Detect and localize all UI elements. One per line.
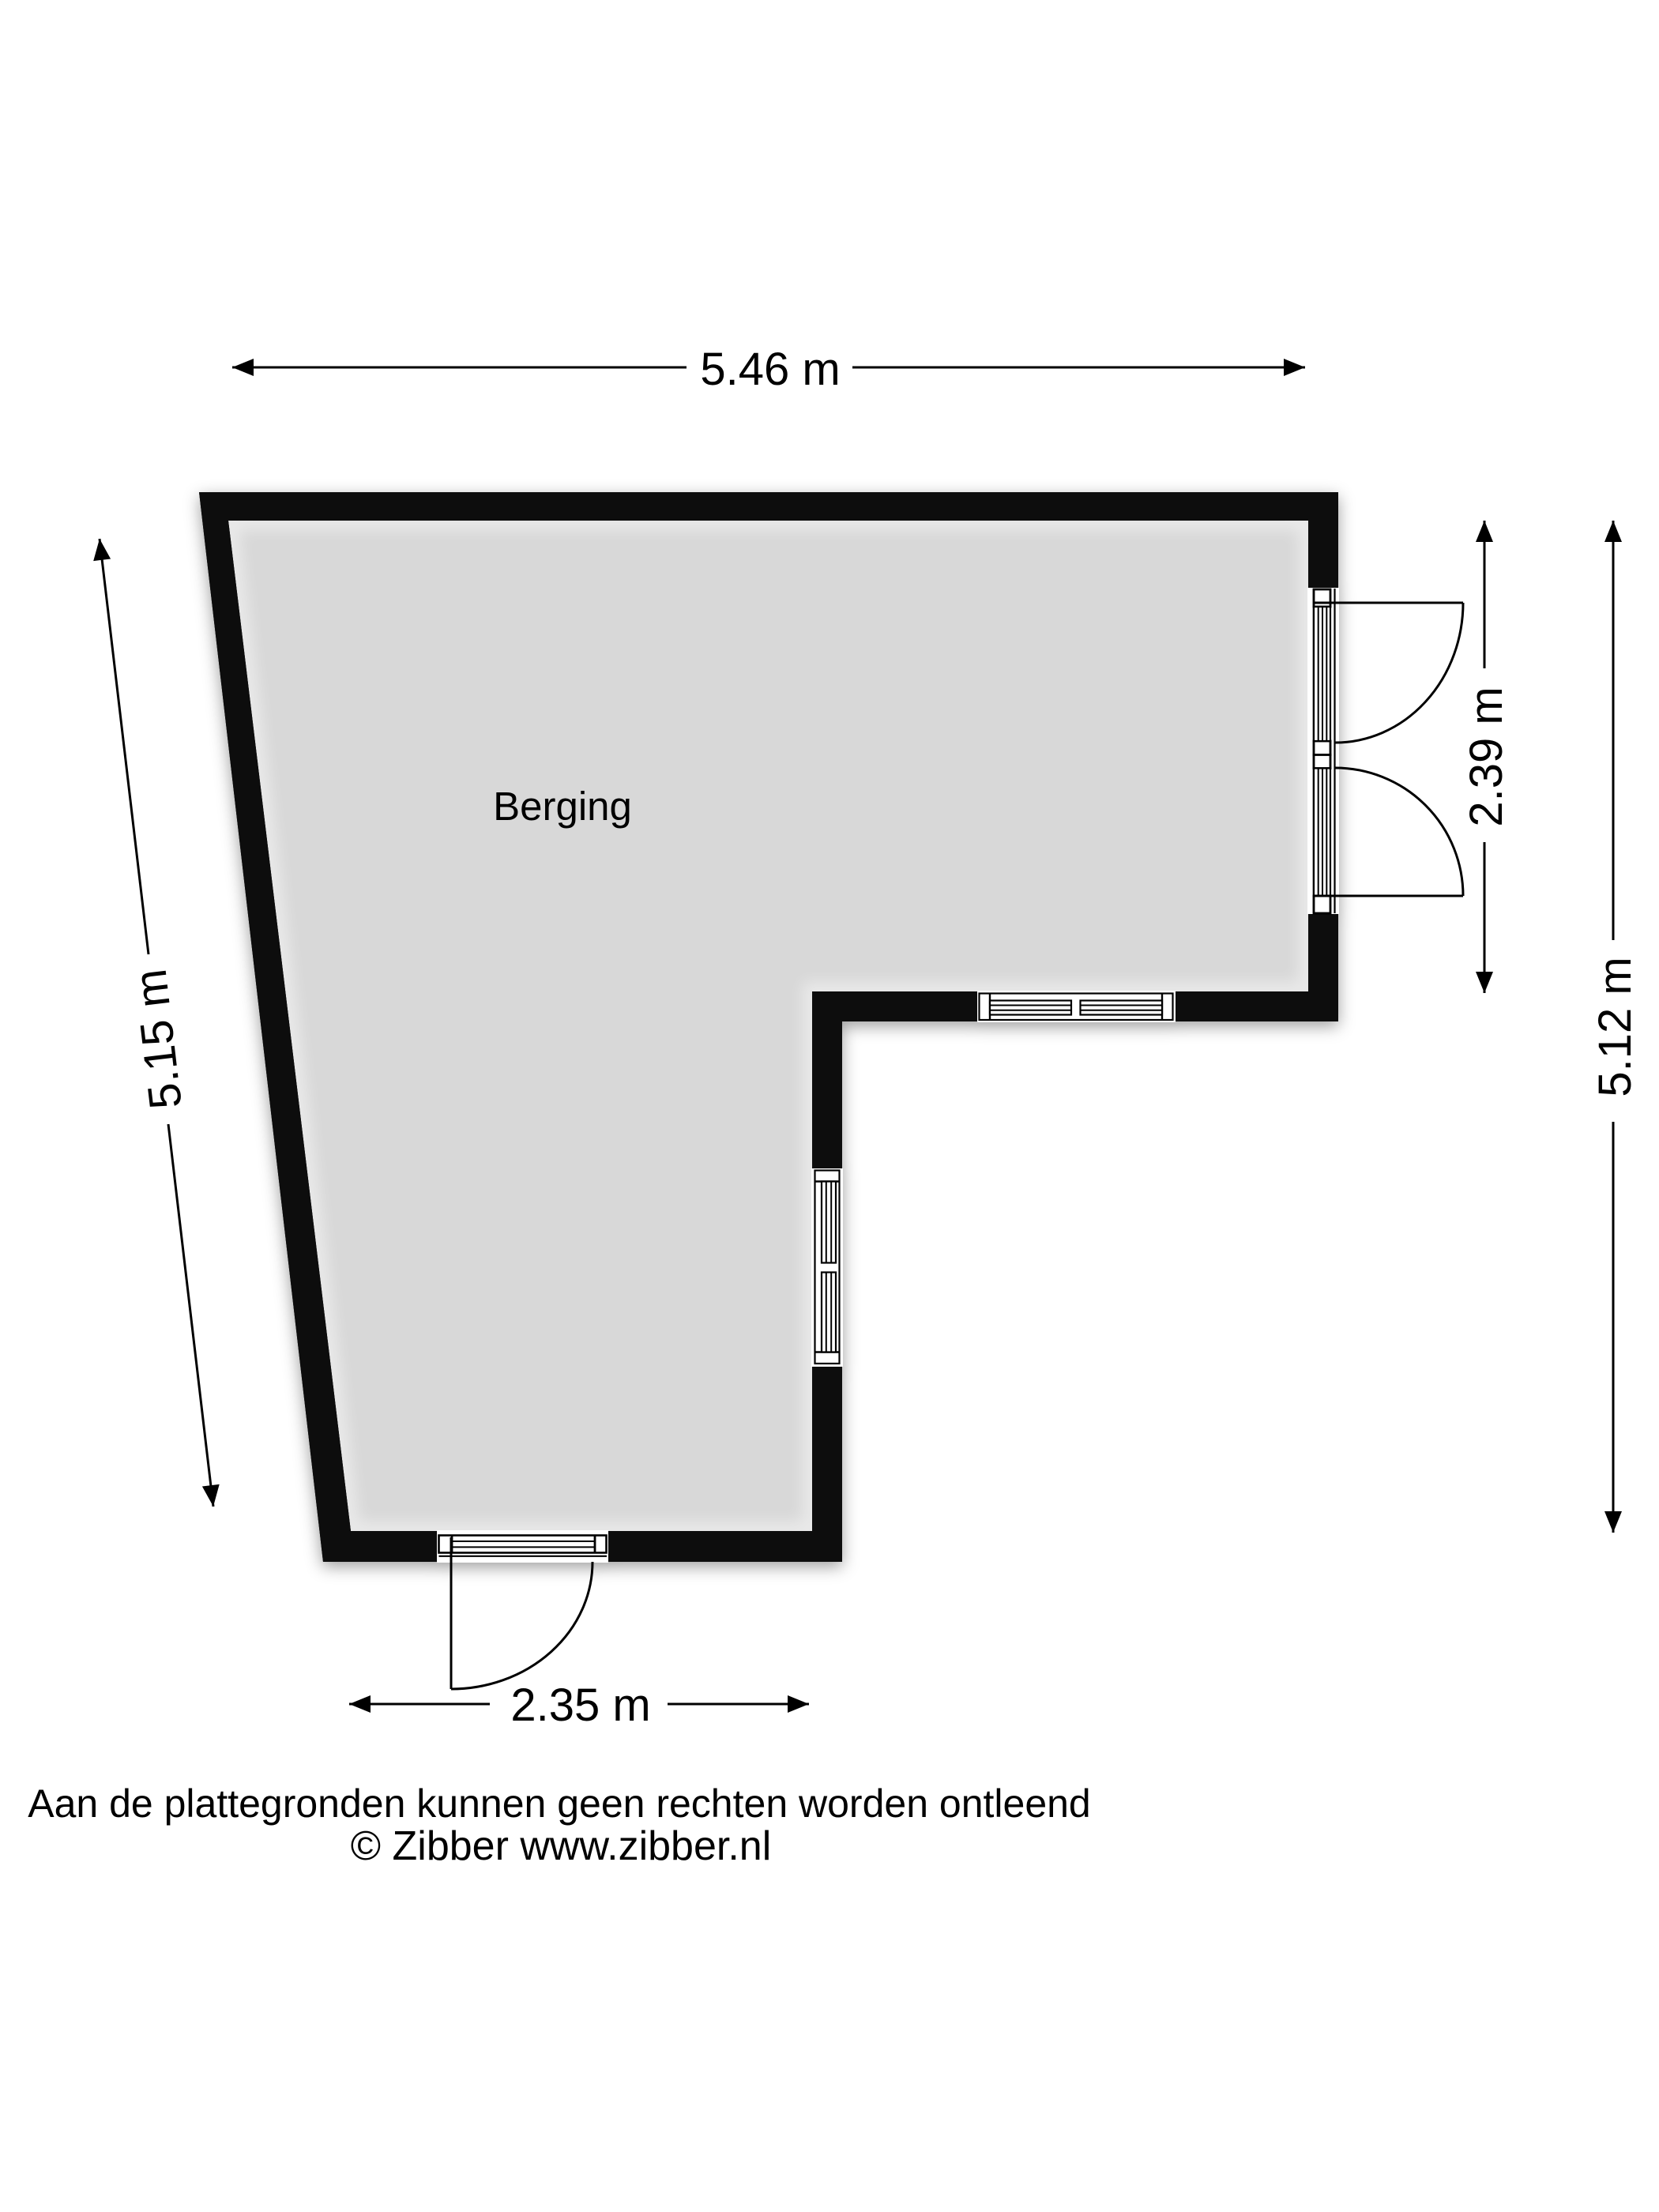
- svg-text:Berging: Berging: [493, 784, 632, 829]
- svg-text:2.39 m: 2.39 m: [1461, 687, 1512, 826]
- svg-text:5.46 m: 5.46 m: [700, 344, 840, 395]
- svg-text:2.35 m: 2.35 m: [510, 1680, 650, 1731]
- svg-text:© Zibber www.zibber.nl: © Zibber www.zibber.nl: [351, 1823, 772, 1869]
- svg-text:5.12 m: 5.12 m: [1589, 957, 1641, 1097]
- svg-text:Aan de plattegronden kunnen ge: Aan de plattegronden kunnen geen rechten…: [28, 1781, 1091, 1826]
